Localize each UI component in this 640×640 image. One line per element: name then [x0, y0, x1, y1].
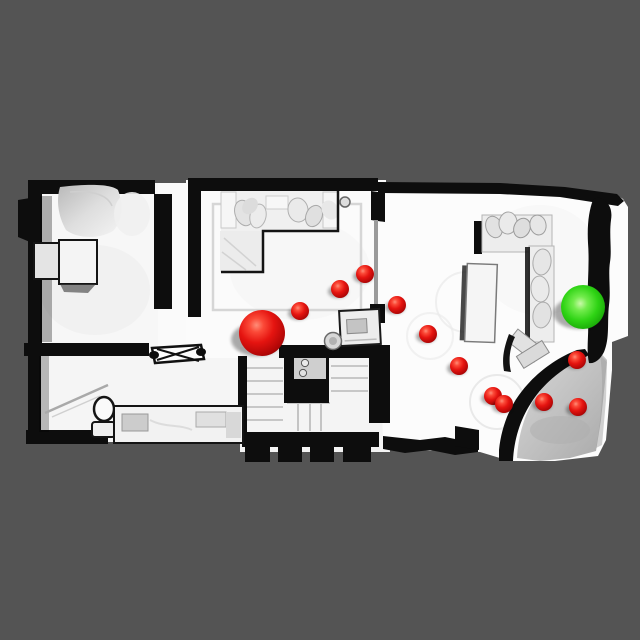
hall-bench: [149, 345, 206, 363]
toilet: [92, 397, 115, 437]
slope-shading: [530, 416, 590, 444]
stair-railing: [242, 432, 379, 447]
wall-livingroom-right-thin: [374, 220, 378, 306]
bed: [58, 185, 150, 237]
railing-post: [278, 446, 302, 462]
railing-post: [245, 446, 270, 462]
waypoint-sphere: [535, 393, 553, 411]
wall-shadow: [39, 356, 49, 432]
waypoint-sphere: [331, 280, 349, 298]
wall-livingroom-right-upper: [371, 191, 385, 222]
waypoint-sphere: [356, 265, 374, 283]
vanity: [114, 406, 243, 443]
railing-post: [310, 446, 334, 462]
scene-canvas: [0, 0, 640, 640]
wall-bulge: [18, 198, 30, 242]
railing-post: [343, 447, 371, 462]
wall-step: [455, 426, 479, 450]
waypoint-sphere: [450, 357, 468, 375]
desk: [339, 309, 381, 346]
wall-bedroom-bathroom-divider: [24, 343, 149, 356]
render-stage: [0, 0, 640, 640]
waypoint-sphere: [569, 398, 587, 416]
waypoint-sphere: [495, 395, 513, 413]
waypoint-sphere: [388, 296, 406, 314]
wall-livingroom-top: [188, 178, 378, 191]
wall-hall-left: [154, 194, 172, 309]
goal-sphere: [561, 285, 605, 329]
stairwell-interior: [294, 358, 326, 379]
wall-hall-right: [188, 184, 201, 317]
waypoint-sphere: [568, 351, 586, 369]
start-sphere: [239, 310, 285, 356]
wall-stairs-right: [369, 345, 390, 423]
floor-lamp: [340, 197, 350, 207]
coffee-table: [460, 263, 498, 342]
waypoint-sphere: [419, 325, 437, 343]
waypoint-sphere: [291, 302, 309, 320]
stool: [325, 333, 342, 350]
